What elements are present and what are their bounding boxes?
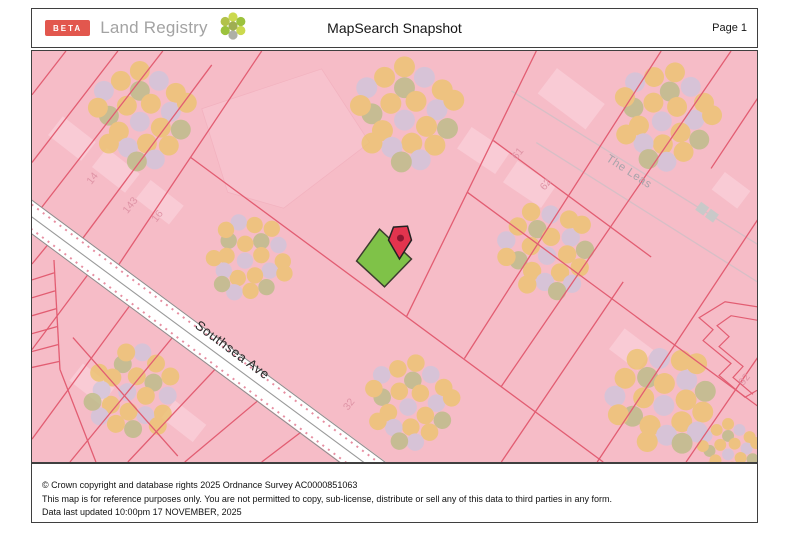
disclaimer-line: This map is for reference purposes only.… xyxy=(42,493,747,507)
page-number: Page 1 xyxy=(712,22,747,34)
header-bar: BETA Land Registry MapSearch Snapshot Pa… xyxy=(31,8,758,48)
page-title: MapSearch Snapshot xyxy=(32,20,757,36)
footer-notes: © Crown copyright and database rights 20… xyxy=(31,463,758,523)
map-canvas: 14 143 16 61 62 32 92 Southsea Ave The L… xyxy=(31,50,758,463)
last-updated-line: Data last updated 10:00pm 17 NOVEMBER, 2… xyxy=(42,506,747,520)
copyright-line: © Crown copyright and database rights 20… xyxy=(42,479,747,493)
map-svg: 14 143 16 61 62 32 92 Southsea Ave The L… xyxy=(32,51,757,462)
